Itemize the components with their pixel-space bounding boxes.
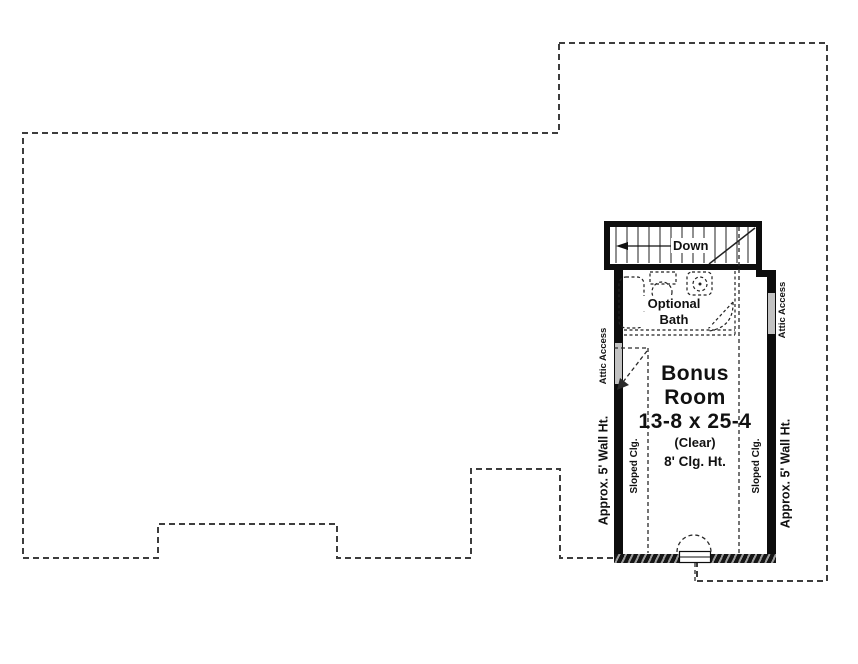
- optional-bath-label-line1: Optional: [637, 296, 711, 311]
- sloped-ceiling-right-label: Sloped Clg.: [748, 406, 764, 526]
- optional-bath-label-line2: Bath: [637, 312, 711, 327]
- attic-access-left-label: Attic Access: [595, 296, 611, 416]
- floor-plan-canvas: Down Optional Bath Bonus Room 13-8 x 25-…: [0, 0, 858, 664]
- plan-linework: [0, 0, 858, 664]
- window-icon: [677, 535, 711, 581]
- down-arrow-icon: [616, 242, 674, 250]
- room-title-line1: Bonus: [610, 362, 780, 386]
- toilet-icon: [687, 272, 712, 295]
- sloped-ceiling-left-label: Sloped Clg.: [626, 406, 642, 526]
- wall-height-right-label: Approx. 5' Wall Ht.: [777, 409, 794, 539]
- attic-access-right-label: Attic Access: [774, 250, 790, 370]
- stairs-down-label: Down: [671, 238, 710, 253]
- wall-height-left-label: Approx. 5' Wall Ht.: [595, 406, 612, 536]
